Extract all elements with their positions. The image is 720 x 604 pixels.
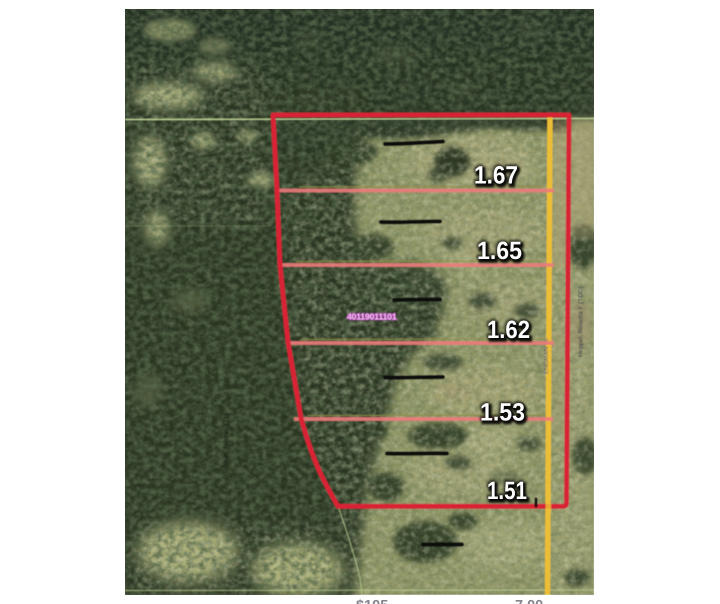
svg-text:7.00: 7.00 [515, 598, 543, 604]
svg-text:1.65: 1.65 [477, 237, 522, 265]
svg-text:$105: $105 [356, 598, 388, 604]
svg-text:40119011101: 40119011101 [347, 312, 397, 322]
svg-text:1.62: 1.62 [487, 316, 530, 344]
svg-text:1.67: 1.67 [474, 162, 518, 190]
svg-text:1.53: 1.53 [480, 399, 525, 427]
svg-text:1.51: 1.51 [487, 477, 527, 505]
svg-text:Heppel, Rosetta F (TOD): Heppel, Rosetta F (TOD) [578, 286, 585, 357]
svg-text:Gorman, Merton 1711: Gorman, Merton 1711 [223, 413, 230, 476]
